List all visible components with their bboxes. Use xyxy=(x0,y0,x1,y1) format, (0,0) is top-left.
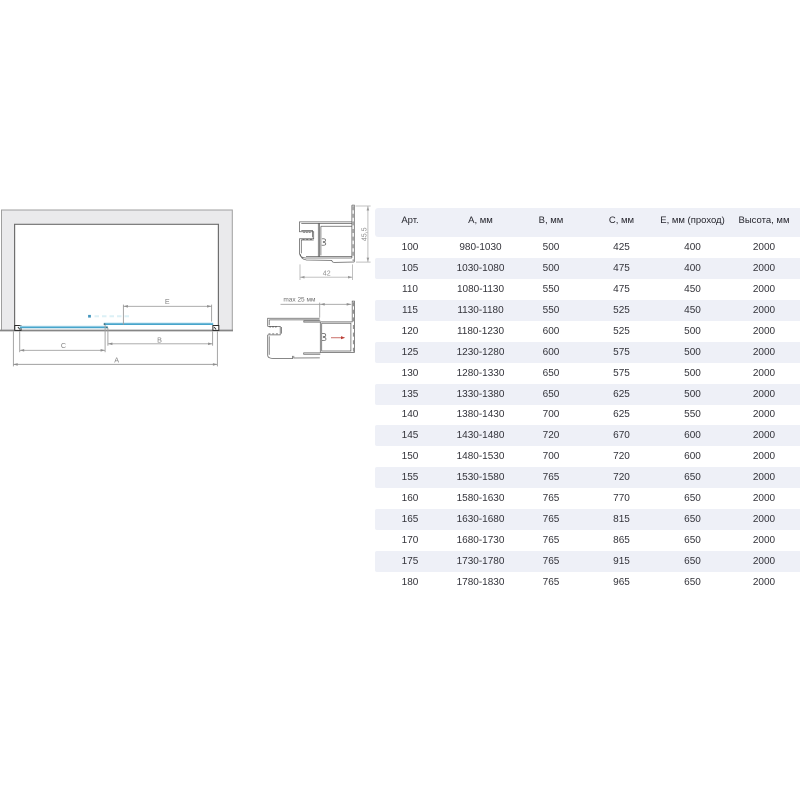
svg-text:max 25 мм: max 25 мм xyxy=(283,297,316,304)
svg-text:E: E xyxy=(165,297,170,306)
svg-text:45,5: 45,5 xyxy=(362,227,369,241)
svg-text:A: A xyxy=(114,356,119,365)
svg-text:B: B xyxy=(157,336,162,345)
svg-text:C: C xyxy=(61,341,66,350)
svg-text:42: 42 xyxy=(323,270,331,277)
